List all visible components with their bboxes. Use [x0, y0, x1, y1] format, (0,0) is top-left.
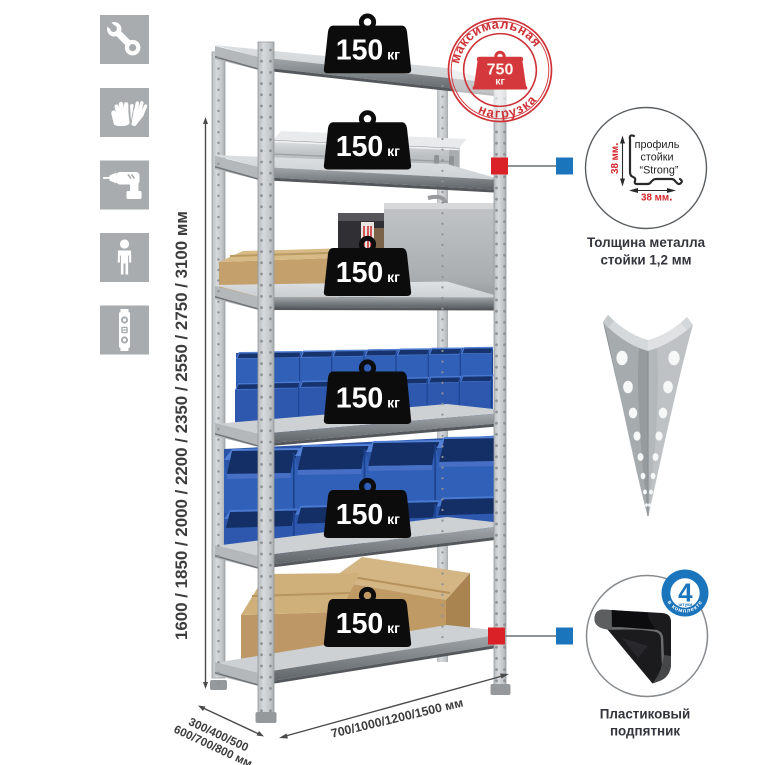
svg-text:подпятник: подпятник [610, 724, 680, 739]
svg-text:кг: кг [387, 47, 400, 63]
svg-text:стойки: стойки [640, 152, 673, 164]
svg-text:штуки: штуки [679, 602, 693, 607]
svg-text:38 мм.: 38 мм. [641, 190, 672, 204]
svg-text:150: 150 [336, 131, 384, 163]
svg-text:кг: кг [387, 395, 400, 411]
svg-text:кг: кг [387, 511, 400, 527]
svg-text:38 мм.: 38 мм. [607, 143, 621, 174]
svg-text:кг: кг [387, 143, 400, 159]
svg-text:150: 150 [336, 383, 384, 415]
svg-text:Пластиковый: Пластиковый [600, 707, 690, 722]
svg-text:150: 150 [336, 35, 384, 67]
svg-text:кг: кг [387, 620, 400, 636]
svg-text:профиль: профиль [635, 139, 680, 151]
svg-text:Толщина металла: Толщина металла [587, 235, 706, 250]
svg-text:150: 150 [336, 608, 384, 640]
svg-text:1600 / 1850 / 2000 / 2200 / 23: 1600 / 1850 / 2000 / 2200 / 2350 / 2550 … [172, 211, 191, 640]
svg-text:кг: кг [387, 269, 400, 285]
svg-text:150: 150 [336, 257, 384, 289]
svg-text:стойки 1,2 мм: стойки 1,2 мм [600, 253, 691, 268]
svg-text:“Strong”: “Strong” [639, 164, 678, 176]
svg-text:150: 150 [336, 499, 384, 531]
svg-text:кг: кг [495, 76, 505, 88]
